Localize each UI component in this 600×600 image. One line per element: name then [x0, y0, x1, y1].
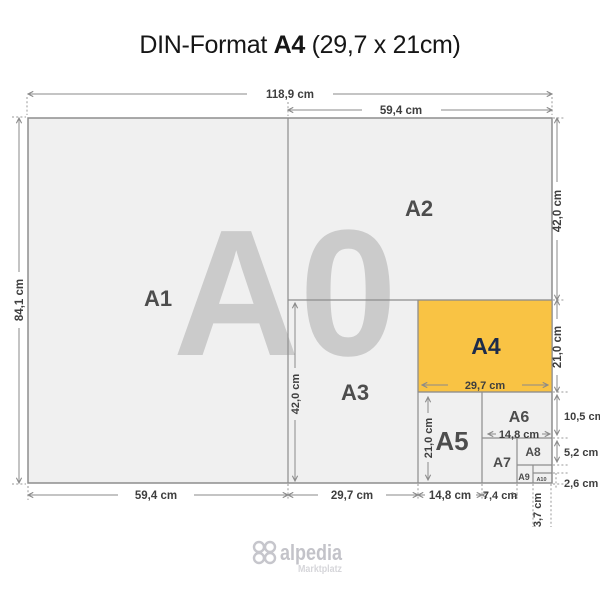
logo-wordmark: alpedia	[280, 540, 343, 565]
label-a5: A5	[435, 426, 468, 456]
clover-petal	[254, 542, 264, 552]
label-a8: A8	[525, 445, 541, 459]
dim-value: 29,7 cm	[465, 380, 506, 392]
dim-value: 14,8 cm	[499, 429, 540, 441]
din-format-diagram: A0 A1 A2 A3 A4 A5 A6 A7 A8 A9 A1	[0, 0, 600, 600]
dim-value: 59,4 cm	[135, 490, 177, 502]
dim-value: 5,2 cm	[564, 447, 598, 459]
dim-value: 2,6 cm	[564, 478, 598, 490]
dim-value: 42,0 cm	[290, 374, 302, 415]
dim-value: 84,1 cm	[14, 279, 26, 321]
dim-a4-height: 21,0 cm	[552, 300, 564, 392]
label-a10: A10	[536, 477, 546, 483]
dim-a6-height: 10,5 cm	[553, 392, 600, 438]
label-a6: A6	[509, 409, 530, 426]
label-a3: A3	[341, 380, 369, 405]
dim-value: 10,5 cm	[564, 411, 600, 423]
clover-petal	[265, 553, 275, 563]
dim-value: 118,9 cm	[266, 89, 314, 101]
dim-value: 14,8 cm	[429, 490, 471, 502]
dim-a5-width: 14,8 cm	[418, 484, 482, 502]
logo-tagline: Marktplatz	[298, 564, 342, 575]
dim-value: 3,7 cm	[532, 493, 544, 527]
label-a9: A9	[518, 472, 530, 482]
label-a4: A4	[471, 333, 501, 359]
label-a7: A7	[493, 454, 511, 470]
clover-icon	[254, 542, 275, 563]
dim-a0-height: 84,1 cm	[12, 117, 26, 484]
clover-petal	[254, 553, 264, 563]
dim-a8-height: 5,2 cm	[553, 441, 598, 465]
dim-a3-width: 29,7 cm	[288, 484, 418, 502]
dim-a2-height: 42,0 cm	[552, 118, 565, 300]
dim-value: 21,0 cm	[423, 418, 435, 459]
din-format-infographic: DIN-Format A4 (29,7 x 21cm) A0	[0, 0, 600, 600]
label-a1: A1	[144, 286, 172, 311]
label-a2: A2	[405, 196, 433, 221]
dim-a10-height: 2,6 cm	[553, 473, 598, 490]
dim-value: 42,0 cm	[552, 190, 564, 232]
dim-a10-width: 3,7 cm	[532, 484, 551, 527]
dim-value: 59,4 cm	[380, 105, 422, 117]
clover-petal	[265, 542, 275, 552]
dim-value: 29,7 cm	[331, 490, 373, 502]
dim-value: 7,4 cm	[483, 490, 517, 502]
dim-a2-width: 59,4 cm	[288, 102, 552, 117]
dim-a7-width: 7,4 cm	[482, 484, 517, 502]
dim-a1-width: 59,4 cm	[28, 486, 288, 502]
dim-value: 21,0 cm	[552, 326, 564, 368]
alpedia-logo: alpedia Marktplatz	[254, 540, 343, 575]
dim-a0-width: 118,9 cm	[27, 89, 552, 115]
a0-watermark: A0	[173, 193, 397, 394]
